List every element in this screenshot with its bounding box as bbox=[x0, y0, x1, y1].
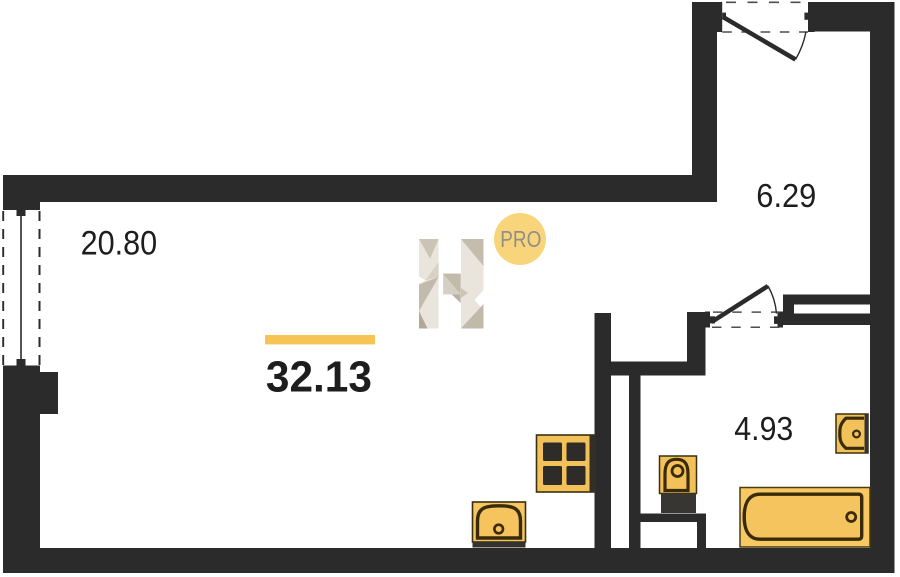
svg-text:4.93: 4.93 bbox=[734, 410, 793, 447]
svg-text:20.80: 20.80 bbox=[81, 224, 158, 262]
svg-text:32.13: 32.13 bbox=[266, 353, 372, 402]
svg-text:6.29: 6.29 bbox=[756, 177, 816, 214]
svg-text:PRO: PRO bbox=[500, 226, 541, 252]
